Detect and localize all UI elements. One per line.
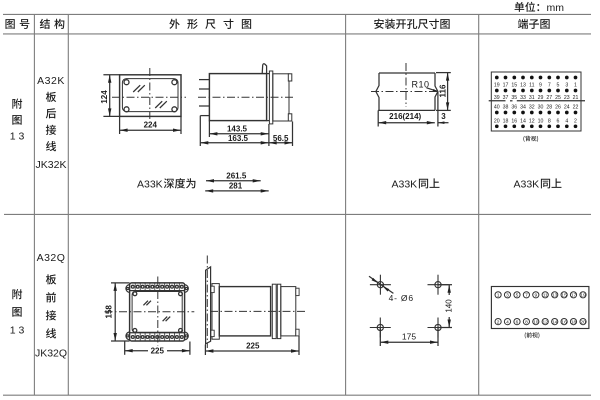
svg-text:4: 4 bbox=[565, 118, 568, 124]
svg-text:14: 14 bbox=[552, 320, 558, 326]
svg-text:33: 33 bbox=[520, 95, 526, 101]
svg-text:1: 1 bbox=[574, 82, 577, 88]
svg-text:23: 23 bbox=[564, 95, 570, 101]
svg-text:140: 140 bbox=[445, 299, 454, 313]
svg-text:JK32Q: JK32Q bbox=[35, 348, 67, 360]
svg-text:15: 15 bbox=[511, 82, 517, 88]
svg-text:19: 19 bbox=[580, 293, 586, 299]
svg-text:JK32K: JK32K bbox=[36, 159, 67, 171]
svg-text:27: 27 bbox=[546, 95, 552, 101]
svg-text:18: 18 bbox=[503, 118, 509, 124]
svg-text:28: 28 bbox=[546, 104, 552, 110]
svg-text:24: 24 bbox=[564, 104, 570, 110]
svg-text:35: 35 bbox=[511, 95, 517, 101]
svg-text:116: 116 bbox=[439, 84, 448, 97]
svg-text:11: 11 bbox=[543, 293, 548, 299]
svg-text:18: 18 bbox=[571, 320, 577, 326]
svg-text:8: 8 bbox=[548, 118, 551, 124]
svg-text:143.5: 143.5 bbox=[227, 125, 248, 134]
svg-text:1 3: 1 3 bbox=[10, 131, 25, 143]
svg-text:A33K: A33K bbox=[137, 179, 163, 191]
svg-text:37: 37 bbox=[503, 95, 509, 101]
svg-text:20: 20 bbox=[580, 320, 586, 326]
svg-text:225: 225 bbox=[246, 341, 260, 350]
svg-text:14: 14 bbox=[520, 118, 526, 124]
svg-text:224: 224 bbox=[144, 121, 158, 130]
svg-text:124: 124 bbox=[100, 90, 109, 104]
svg-text:21: 21 bbox=[573, 95, 579, 101]
svg-text:39: 39 bbox=[494, 95, 500, 101]
svg-text:30: 30 bbox=[538, 104, 544, 110]
svg-text:2: 2 bbox=[574, 118, 577, 124]
svg-text:20: 20 bbox=[494, 118, 500, 124]
svg-text:A32K: A32K bbox=[37, 75, 65, 87]
svg-text:6: 6 bbox=[516, 320, 519, 326]
svg-text:16: 16 bbox=[561, 320, 567, 326]
svg-text:225: 225 bbox=[151, 346, 165, 355]
svg-text:5: 5 bbox=[516, 293, 519, 299]
svg-text:9: 9 bbox=[539, 82, 542, 88]
svg-text:4: 4 bbox=[506, 320, 509, 326]
svg-text:5: 5 bbox=[557, 82, 560, 88]
svg-text:40: 40 bbox=[494, 104, 500, 110]
svg-text:261.5: 261.5 bbox=[226, 171, 247, 180]
svg-text:A33K: A33K bbox=[514, 179, 540, 191]
svg-text:22: 22 bbox=[573, 104, 579, 110]
svg-text:1 3: 1 3 bbox=[10, 324, 25, 336]
svg-text:13: 13 bbox=[520, 82, 526, 88]
svg-text:31: 31 bbox=[529, 95, 535, 101]
svg-text:26: 26 bbox=[555, 104, 561, 110]
svg-text:3: 3 bbox=[565, 82, 568, 88]
svg-text:163.5: 163.5 bbox=[228, 134, 249, 143]
svg-text:36: 36 bbox=[511, 104, 517, 110]
svg-text:A32Q: A32Q bbox=[37, 252, 66, 264]
svg-text:12: 12 bbox=[529, 118, 535, 124]
svg-text:10: 10 bbox=[538, 118, 544, 124]
svg-text:13: 13 bbox=[552, 293, 558, 299]
svg-text:19: 19 bbox=[494, 82, 500, 88]
svg-text:8: 8 bbox=[525, 320, 528, 326]
svg-text:6: 6 bbox=[557, 118, 560, 124]
svg-text:9: 9 bbox=[534, 293, 537, 299]
svg-text:3: 3 bbox=[441, 112, 446, 121]
svg-text:2: 2 bbox=[497, 320, 500, 326]
svg-text:15: 15 bbox=[561, 293, 567, 299]
svg-text:7: 7 bbox=[525, 293, 528, 299]
svg-text:17: 17 bbox=[503, 82, 509, 88]
svg-text:32: 32 bbox=[529, 104, 535, 110]
svg-text:34: 34 bbox=[520, 104, 526, 110]
svg-text:A33K: A33K bbox=[392, 179, 418, 191]
svg-text:11: 11 bbox=[529, 82, 534, 88]
svg-text:29: 29 bbox=[538, 95, 544, 101]
svg-text:10: 10 bbox=[533, 320, 539, 326]
svg-text:216(214): 216(214) bbox=[389, 112, 421, 121]
svg-text:281: 281 bbox=[229, 182, 243, 191]
svg-text:175: 175 bbox=[402, 331, 416, 341]
svg-text:56.5: 56.5 bbox=[273, 134, 289, 143]
svg-text:158: 158 bbox=[105, 305, 114, 319]
svg-text:16: 16 bbox=[511, 118, 517, 124]
svg-text:4- Ø6: 4- Ø6 bbox=[389, 293, 414, 303]
svg-text:25: 25 bbox=[555, 95, 561, 101]
svg-text:17: 17 bbox=[571, 293, 577, 299]
svg-text:3: 3 bbox=[506, 293, 509, 299]
svg-text:1: 1 bbox=[497, 293, 500, 299]
svg-text:mm: mm bbox=[547, 2, 565, 14]
svg-text:7: 7 bbox=[548, 82, 551, 88]
svg-text:38: 38 bbox=[503, 104, 509, 110]
svg-text:12: 12 bbox=[543, 320, 549, 326]
